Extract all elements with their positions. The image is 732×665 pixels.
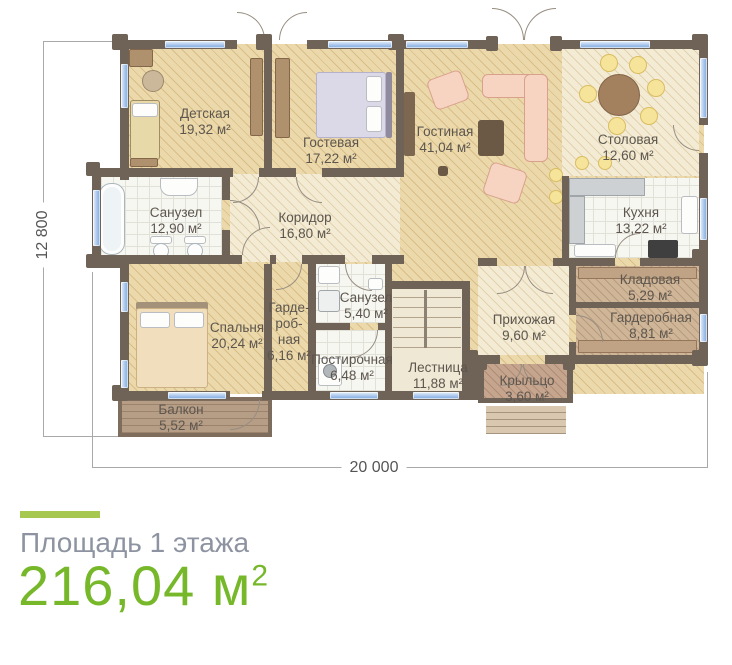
room-area: 19,32 м² bbox=[179, 122, 230, 138]
dimension-height-label: 12 800 bbox=[34, 203, 52, 268]
wall bbox=[92, 168, 233, 177]
wall bbox=[259, 168, 296, 177]
room-area: 5,52 м² bbox=[158, 418, 203, 434]
window bbox=[165, 41, 225, 48]
wall bbox=[640, 258, 699, 266]
room-name: Кухня bbox=[615, 205, 666, 221]
room-label-gostinaya: Гостиная41,04 м² bbox=[417, 124, 474, 156]
room-label-lestnitsa: Лестница11,88 м² bbox=[408, 360, 468, 392]
window bbox=[168, 392, 226, 399]
wall bbox=[378, 323, 385, 330]
room-area: 9,60 м² bbox=[493, 328, 556, 344]
dining-chair bbox=[647, 79, 665, 97]
room-area: 20,24 м² bbox=[210, 336, 264, 352]
footer-accent-bar bbox=[20, 511, 100, 518]
room-name: Гардеробная bbox=[610, 310, 692, 326]
wall bbox=[92, 255, 242, 264]
door-arc bbox=[279, 12, 307, 40]
room-label-spalnya: Спальня20,24 м² bbox=[210, 320, 264, 352]
pillow bbox=[366, 106, 382, 132]
room-area: 8,81 м² bbox=[610, 326, 692, 342]
window bbox=[328, 41, 392, 48]
room-name: Крыльцо bbox=[499, 373, 554, 389]
room-name: Гарде- роб- ная bbox=[267, 300, 311, 348]
window bbox=[121, 360, 128, 388]
side-table bbox=[438, 166, 448, 176]
wall bbox=[569, 342, 576, 355]
room-area: 12,90 м² bbox=[150, 221, 203, 237]
window bbox=[700, 314, 707, 342]
room-name: Детская bbox=[179, 106, 230, 122]
room-label-detskaya: Детская19,32 м² bbox=[179, 106, 230, 138]
coffee-table bbox=[478, 120, 504, 156]
room-name: Санузел bbox=[340, 290, 393, 306]
dimension-extension bbox=[43, 436, 118, 437]
wall bbox=[270, 255, 276, 264]
wall bbox=[562, 258, 615, 266]
room-label-stolovaya: Столовая12,60 м² bbox=[598, 132, 658, 164]
pillow bbox=[140, 312, 170, 328]
log-joint bbox=[475, 357, 487, 370]
stairs-divider bbox=[424, 290, 427, 348]
stairs-treads bbox=[393, 290, 461, 348]
wall bbox=[302, 255, 345, 264]
dining-chair bbox=[579, 85, 597, 103]
shelf bbox=[250, 58, 263, 136]
dining-chair bbox=[600, 54, 618, 72]
log-joint bbox=[256, 34, 272, 50]
pillow bbox=[174, 312, 204, 328]
area-number: 216,04 bbox=[18, 554, 195, 617]
room-label-kuhnya: Кухня13,22 м² bbox=[615, 205, 666, 237]
bathtub-inner bbox=[103, 187, 121, 251]
room-area: 12,60 м² bbox=[598, 148, 658, 164]
wall bbox=[392, 281, 470, 289]
room-name: Балкон bbox=[158, 402, 203, 418]
wall bbox=[478, 258, 497, 266]
wall bbox=[264, 49, 272, 174]
room-label-balkon: Балкон5,52 м² bbox=[158, 402, 203, 434]
dimension-extension bbox=[92, 272, 93, 467]
room-area: 16,80 м² bbox=[278, 226, 331, 242]
log-joint bbox=[692, 249, 708, 263]
wall bbox=[396, 49, 404, 177]
floor-area-value: 216,04 м2 bbox=[18, 558, 269, 614]
log-joint bbox=[563, 357, 575, 370]
wall bbox=[569, 266, 576, 315]
room-name: Коридор bbox=[278, 210, 331, 226]
window bbox=[580, 41, 650, 48]
dimension-width-label: 20 000 bbox=[342, 459, 407, 477]
window bbox=[413, 392, 459, 399]
room-label-sanuzel-big: Санузел12,90 м² bbox=[150, 205, 203, 237]
sofa bbox=[524, 74, 548, 162]
room-area: 6,16 м² bbox=[267, 348, 311, 364]
wall bbox=[120, 40, 129, 180]
headboard bbox=[386, 72, 392, 138]
dining-chair bbox=[629, 56, 647, 74]
room-name: Гостиная bbox=[417, 124, 474, 140]
porch-steps bbox=[486, 406, 566, 434]
window bbox=[406, 41, 468, 48]
room-label-garderobnaya-big: Гардеробная8,81 м² bbox=[610, 310, 692, 342]
window bbox=[700, 198, 707, 240]
room-area: 3,60 м² bbox=[499, 389, 554, 405]
log-joint bbox=[112, 34, 128, 50]
room-name: Кладовая bbox=[620, 272, 680, 288]
room-name: Спальня bbox=[210, 320, 264, 336]
window bbox=[121, 282, 128, 312]
room-area: 11,88 м² bbox=[408, 376, 468, 392]
room-name: Столовая bbox=[598, 132, 658, 148]
log-joint bbox=[550, 36, 562, 51]
log-joint bbox=[692, 350, 708, 366]
dimension-extension bbox=[43, 41, 120, 42]
log-joint bbox=[86, 162, 100, 176]
pillow bbox=[366, 76, 382, 102]
wall bbox=[562, 176, 569, 266]
wardrobe bbox=[275, 58, 290, 138]
dining-table bbox=[598, 74, 640, 116]
room-label-koridor: Коридор16,80 м² bbox=[278, 210, 331, 242]
washbasin bbox=[318, 266, 340, 284]
washbasin bbox=[160, 178, 198, 196]
dresser bbox=[130, 158, 158, 167]
pillow bbox=[132, 103, 158, 117]
room-label-kladovaya: Кладовая5,29 м² bbox=[620, 272, 680, 304]
floor-plan-page: Детская19,32 м² Гостевая17,22 м² Гостина… bbox=[0, 0, 732, 665]
room-name: Санузел bbox=[150, 205, 203, 221]
log-joint bbox=[86, 254, 100, 268]
kitchen-counter bbox=[569, 178, 645, 196]
fridge bbox=[574, 244, 616, 257]
kitchen-counter bbox=[569, 196, 585, 244]
room-area: 17,22 м² bbox=[303, 151, 359, 167]
bar-stool bbox=[575, 156, 589, 170]
desk bbox=[129, 49, 153, 67]
dining-chair bbox=[640, 107, 658, 125]
tv-stand bbox=[404, 92, 415, 156]
room-area: 41,04 м² bbox=[417, 140, 474, 156]
room-name: Постирочная bbox=[311, 352, 393, 368]
chair bbox=[142, 70, 164, 92]
shower-tray bbox=[318, 290, 340, 312]
window bbox=[330, 392, 378, 399]
window bbox=[700, 58, 707, 118]
room-label-sanuzel-small: Санузел5,40 м² bbox=[340, 290, 393, 322]
room-name: Гостевая bbox=[303, 135, 359, 151]
room-label-postirochnaya: Постирочная6,48 м² bbox=[311, 352, 393, 384]
wall bbox=[322, 168, 404, 177]
stove bbox=[648, 240, 678, 258]
room-label-kryltso: Крыльцо3,60 м² bbox=[499, 373, 554, 405]
window bbox=[93, 190, 100, 246]
wall bbox=[315, 323, 350, 330]
room-name: Прихожая bbox=[493, 312, 556, 328]
room-area: 6,48 м² bbox=[311, 368, 393, 384]
bar-stool bbox=[549, 190, 563, 204]
area-unit-exponent: 2 bbox=[251, 559, 269, 592]
room-area: 5,40 м² bbox=[340, 306, 393, 322]
room-label-gostevaya: Гостевая17,22 м² bbox=[303, 135, 359, 167]
room-name: Лестница bbox=[408, 360, 468, 376]
room-area: 5,29 м² bbox=[620, 288, 680, 304]
room-label-prihozhaya: Прихожая9,60 м² bbox=[493, 312, 556, 344]
kitchen-sink bbox=[681, 196, 698, 234]
dimension-extension bbox=[707, 372, 708, 467]
area-unit: м bbox=[195, 554, 251, 617]
bar-stool bbox=[549, 168, 563, 182]
log-joint bbox=[692, 34, 708, 50]
window bbox=[121, 64, 128, 108]
log-joint bbox=[486, 36, 498, 51]
room-area: 13,22 м² bbox=[615, 221, 666, 237]
room-label-garderobnaya-small: Гарде- роб- ная6,16 м² bbox=[267, 300, 311, 364]
wall bbox=[222, 177, 230, 200]
